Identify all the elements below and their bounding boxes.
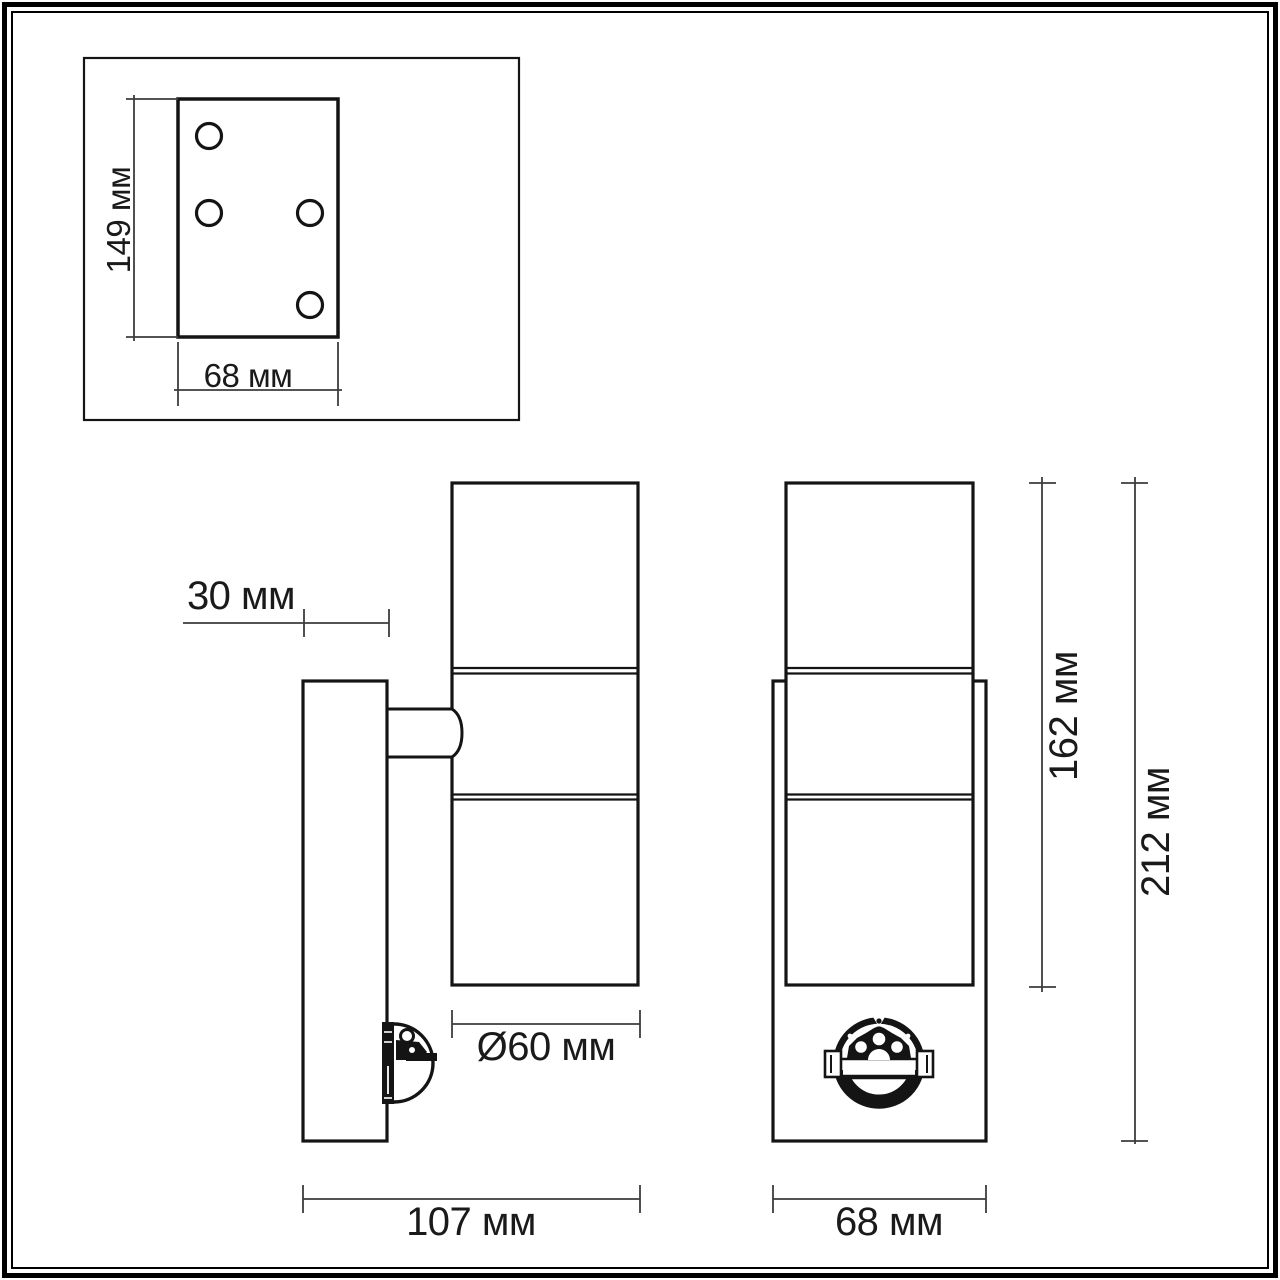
front-view — [773, 477, 1148, 1213]
motion-sensor-side — [382, 1022, 437, 1104]
cylinder-front-outline — [786, 483, 973, 985]
side-depth-30-label: 30 мм — [151, 576, 331, 616]
sensor-tab-left — [825, 1051, 841, 1077]
sensor-top-pivot — [876, 1018, 881, 1023]
mounting-hole — [298, 293, 323, 318]
mounting-hole — [197, 201, 222, 226]
inset-width-label: 68 мм — [178, 358, 318, 392]
mounting-hole — [298, 201, 323, 226]
side-diameter-60-label: Ø60 мм — [436, 1027, 656, 1067]
sensor-tab-right — [917, 1051, 933, 1077]
front-width-68-label: 68 мм — [789, 1202, 989, 1242]
drawing-line-art — [0, 0, 1280, 1280]
cylinder-side-outline — [452, 483, 638, 985]
inset-height-label: 149 мм — [100, 140, 136, 300]
mounting-hole — [197, 124, 222, 149]
sensor-shield — [406, 1053, 437, 1061]
side-depth-107-label: 107 мм — [361, 1202, 581, 1242]
front-body-height-162-label: 162 мм — [1044, 616, 1084, 816]
wall-plate-side-outline — [303, 681, 387, 1141]
front-total-height-212-label: 212 мм — [1136, 732, 1176, 932]
mounting-arm — [387, 709, 462, 757]
technical-drawing-canvas: 149 мм 68 мм 30 мм Ø60 мм 107 мм 68 мм 1… — [0, 0, 1280, 1280]
